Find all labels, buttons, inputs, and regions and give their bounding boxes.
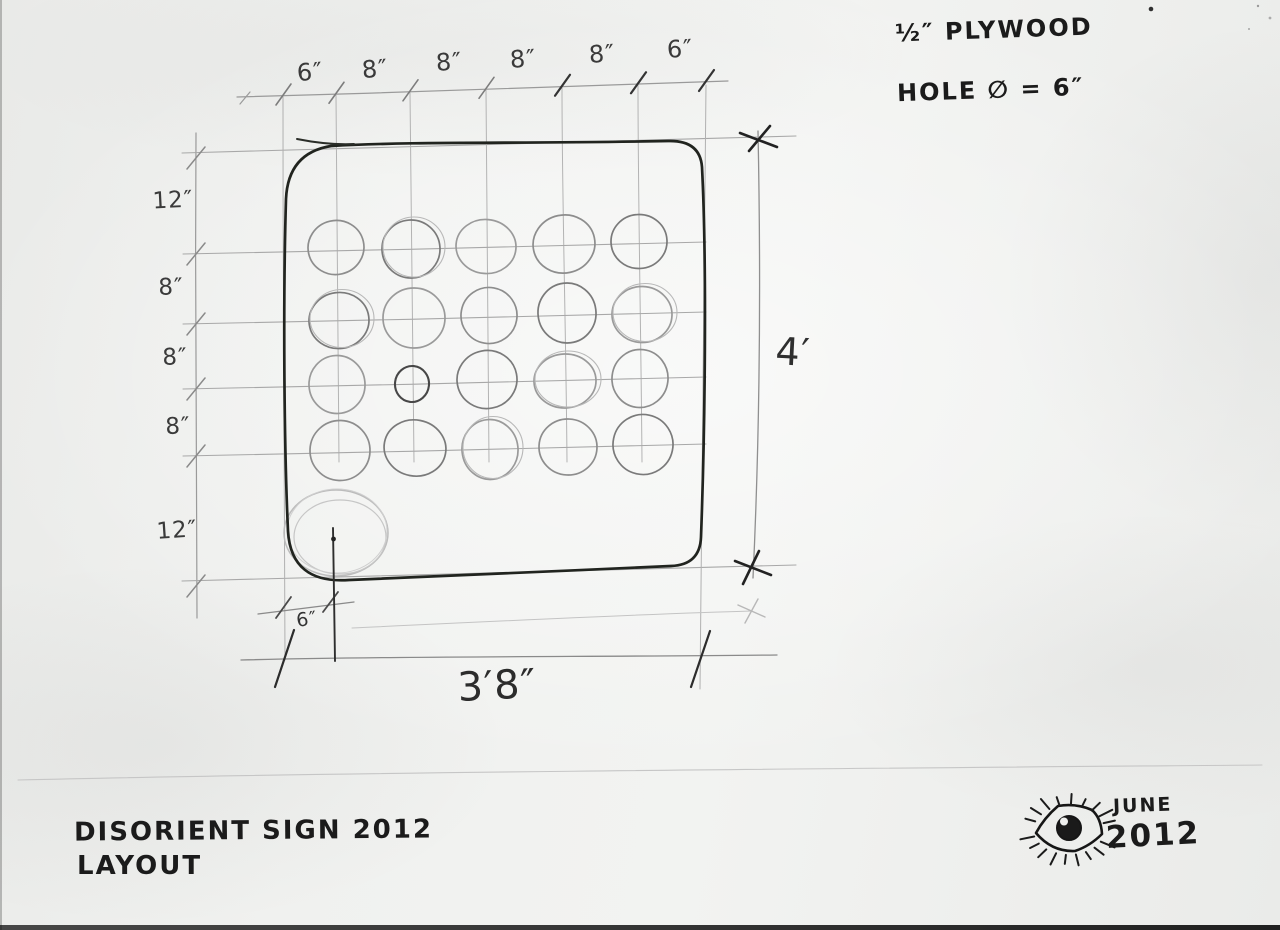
slash-tick-top — [699, 70, 714, 91]
slash-tick-left — [187, 575, 205, 597]
eye-lash — [1038, 849, 1046, 857]
eye-lash — [1065, 855, 1066, 864]
eye-lash — [1031, 808, 1041, 814]
dim-label-left-5: 12″ — [156, 518, 198, 544]
note-material: ½″ PLYWOOD — [895, 15, 1093, 46]
ink-speck — [1149, 7, 1154, 12]
dim-label-right-height: 4′ — [775, 332, 812, 372]
eye-lash — [1057, 797, 1060, 806]
scan-speck — [1269, 17, 1272, 20]
dim-label-left-4: 8″ — [165, 415, 191, 439]
scanned-sketch-page: 6″ 8″ 8″ 8″ 8″ 6″ 12″ 8″ 8″ 8″ 12″ 4′ 3′… — [0, 0, 1280, 930]
date-year: 2012 — [1105, 818, 1201, 854]
hole-circle-echo — [383, 217, 445, 277]
panel-outline-overshoot — [297, 139, 354, 144]
plywood-panel — [284, 139, 705, 580]
eye-lash — [1095, 848, 1104, 855]
title-line2: LAYOUT — [77, 853, 202, 879]
dim-label-left-2: 8″ — [158, 276, 184, 300]
dim-label-top-1: 6″ — [296, 59, 324, 85]
hole-circle — [309, 419, 371, 481]
eye-lash — [1086, 852, 1091, 859]
eye-lash — [1092, 803, 1100, 811]
dimension-line-right — [753, 131, 760, 578]
hole-row-guide — [183, 444, 706, 456]
hole-grid — [284, 209, 679, 576]
eye-lash — [1041, 799, 1050, 809]
dimension-line-top-tail — [240, 92, 250, 104]
title-line1: DISORIENT SIGN 2012 — [74, 816, 433, 845]
dim-label-left-1: 12″ — [152, 188, 194, 213]
hole-circle — [308, 354, 367, 415]
hole-circle — [452, 345, 522, 413]
paper-crease-line — [18, 765, 1262, 780]
construction-lines — [18, 81, 1262, 780]
eye-lash — [1082, 799, 1086, 807]
extension-line-panel-top — [182, 136, 796, 153]
stray-guide-line — [352, 611, 752, 628]
grid-guides — [183, 70, 714, 597]
dimension-line-left — [196, 133, 197, 618]
hole-center-mark — [331, 537, 336, 542]
hole-circle-echo — [463, 417, 523, 479]
hole-circle — [303, 215, 370, 280]
dim-label-top-4: 8″ — [509, 46, 537, 72]
eye-lash — [1099, 810, 1112, 817]
sketch-canvas — [0, 0, 1280, 930]
eye-lash — [1025, 819, 1035, 822]
eye-lash — [1071, 794, 1072, 805]
date-month: JUNE — [1113, 795, 1173, 816]
hole-circle-echo — [535, 351, 601, 407]
eye-icon — [1020, 794, 1115, 865]
panel-outline — [284, 141, 705, 580]
hole-column-guide — [486, 90, 489, 462]
scan-speck — [1248, 28, 1250, 30]
hole-circle — [457, 283, 522, 348]
dim-label-hole-offset: 6″ — [295, 609, 319, 631]
hole-circle-echo — [310, 290, 374, 348]
eye-lash — [1020, 837, 1034, 840]
eye-highlight — [1060, 818, 1068, 826]
hole-circle — [535, 280, 600, 347]
dim-label-top-5: 8″ — [588, 41, 616, 67]
hole-column-guide — [562, 88, 567, 462]
dim-label-top-6: 6″ — [666, 36, 694, 62]
eye-lash — [1051, 853, 1057, 864]
ghost-hole-circle — [294, 500, 386, 574]
dim-label-bottom-width: 3′8″ — [457, 664, 538, 708]
slash-tick-offset-left — [276, 597, 291, 618]
slash-tick-offset-right — [323, 592, 338, 612]
dim-label-top-2: 8″ — [361, 56, 389, 82]
dim-label-left-3: 8″ — [162, 346, 188, 370]
eye-lash — [1030, 844, 1039, 848]
hole-row-guide — [183, 377, 706, 389]
ghost-hole-circle — [287, 489, 387, 573]
hole-circle — [382, 287, 445, 348]
hole-column-guide — [336, 95, 339, 462]
note-hole-diameter: HOLE ∅ = 6″ — [897, 75, 1085, 106]
hole-center-extension-line — [333, 528, 335, 661]
scan-speck — [1257, 5, 1259, 7]
dim-label-top-3: 8″ — [435, 49, 463, 75]
eye-lash — [1076, 855, 1079, 866]
x-tick-right-bottom — [735, 551, 771, 584]
dimension-line-bottom-width — [241, 655, 777, 660]
hole-circle — [379, 415, 451, 482]
